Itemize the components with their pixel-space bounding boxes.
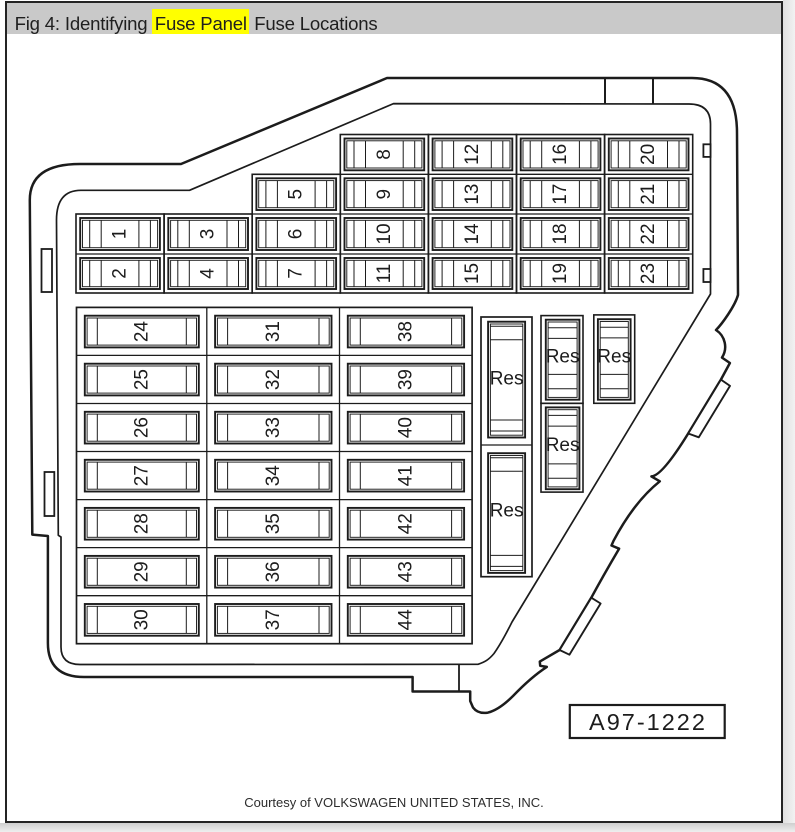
svg-text:1: 1	[110, 229, 131, 240]
svg-text:2: 2	[110, 268, 131, 279]
svg-text:26: 26	[131, 417, 152, 438]
svg-text:43: 43	[396, 561, 417, 582]
svg-text:15: 15	[462, 263, 483, 284]
svg-text:7: 7	[286, 268, 307, 279]
svg-text:30: 30	[131, 609, 152, 630]
svg-text:Res: Res	[546, 435, 580, 456]
svg-text:5: 5	[286, 189, 307, 200]
svg-text:38: 38	[396, 321, 417, 342]
svg-text:27: 27	[131, 465, 152, 486]
svg-text:25: 25	[131, 369, 152, 390]
svg-text:8: 8	[374, 149, 395, 160]
svg-text:9: 9	[374, 189, 395, 200]
svg-text:A97-1222: A97-1222	[589, 709, 707, 735]
svg-text:44: 44	[396, 609, 417, 631]
svg-text:Res: Res	[490, 501, 524, 522]
svg-text:34: 34	[263, 465, 284, 487]
svg-text:21: 21	[638, 184, 659, 205]
svg-text:39: 39	[396, 369, 417, 390]
svg-text:35: 35	[263, 513, 284, 534]
svg-text:20: 20	[638, 144, 659, 165]
svg-text:6: 6	[286, 229, 307, 240]
svg-text:23: 23	[638, 263, 659, 284]
svg-text:22: 22	[638, 223, 659, 244]
svg-text:40: 40	[396, 417, 417, 438]
svg-text:10: 10	[374, 223, 395, 244]
svg-text:3: 3	[198, 229, 219, 240]
svg-text:Res: Res	[597, 347, 631, 368]
svg-text:36: 36	[263, 561, 284, 582]
svg-text:31: 31	[263, 321, 284, 342]
svg-text:28: 28	[131, 513, 152, 534]
svg-text:41: 41	[396, 465, 417, 486]
svg-text:16: 16	[550, 144, 571, 165]
svg-text:33: 33	[263, 417, 284, 438]
svg-text:32: 32	[263, 369, 284, 390]
svg-text:Res: Res	[546, 347, 580, 368]
svg-text:29: 29	[131, 561, 152, 582]
svg-text:37: 37	[263, 609, 284, 630]
svg-text:4: 4	[198, 268, 219, 279]
svg-text:17: 17	[550, 184, 571, 205]
svg-text:18: 18	[550, 223, 571, 244]
svg-text:24: 24	[131, 321, 152, 343]
svg-text:14: 14	[462, 223, 483, 245]
svg-text:13: 13	[462, 184, 483, 205]
svg-text:Res: Res	[490, 369, 524, 390]
svg-text:12: 12	[462, 144, 483, 165]
svg-text:19: 19	[550, 263, 571, 284]
svg-text:42: 42	[396, 513, 417, 534]
svg-text:11: 11	[374, 264, 395, 284]
